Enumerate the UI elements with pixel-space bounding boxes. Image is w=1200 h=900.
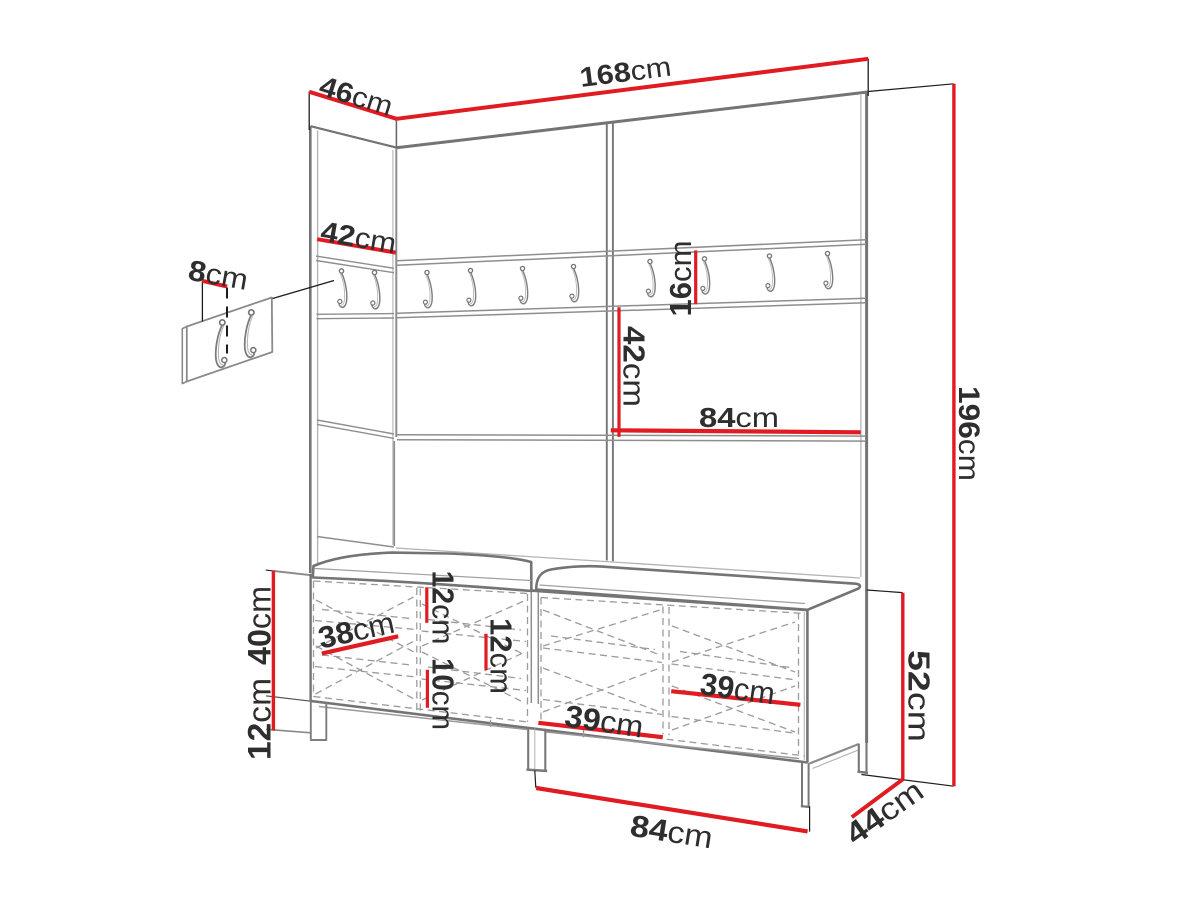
svg-text:16cm: 16cm: [664, 241, 698, 317]
svg-text:42cm: 42cm: [617, 326, 652, 407]
svg-text:12cm: 12cm: [241, 678, 277, 760]
svg-text:52cm: 52cm: [902, 650, 937, 742]
svg-text:84cm: 84cm: [699, 402, 779, 433]
svg-text:10cm: 10cm: [425, 658, 460, 730]
svg-text:40cm: 40cm: [241, 586, 277, 665]
svg-text:196cm: 196cm: [952, 386, 985, 481]
svg-text:12cm: 12cm: [484, 618, 519, 694]
svg-text:12cm: 12cm: [425, 571, 460, 645]
